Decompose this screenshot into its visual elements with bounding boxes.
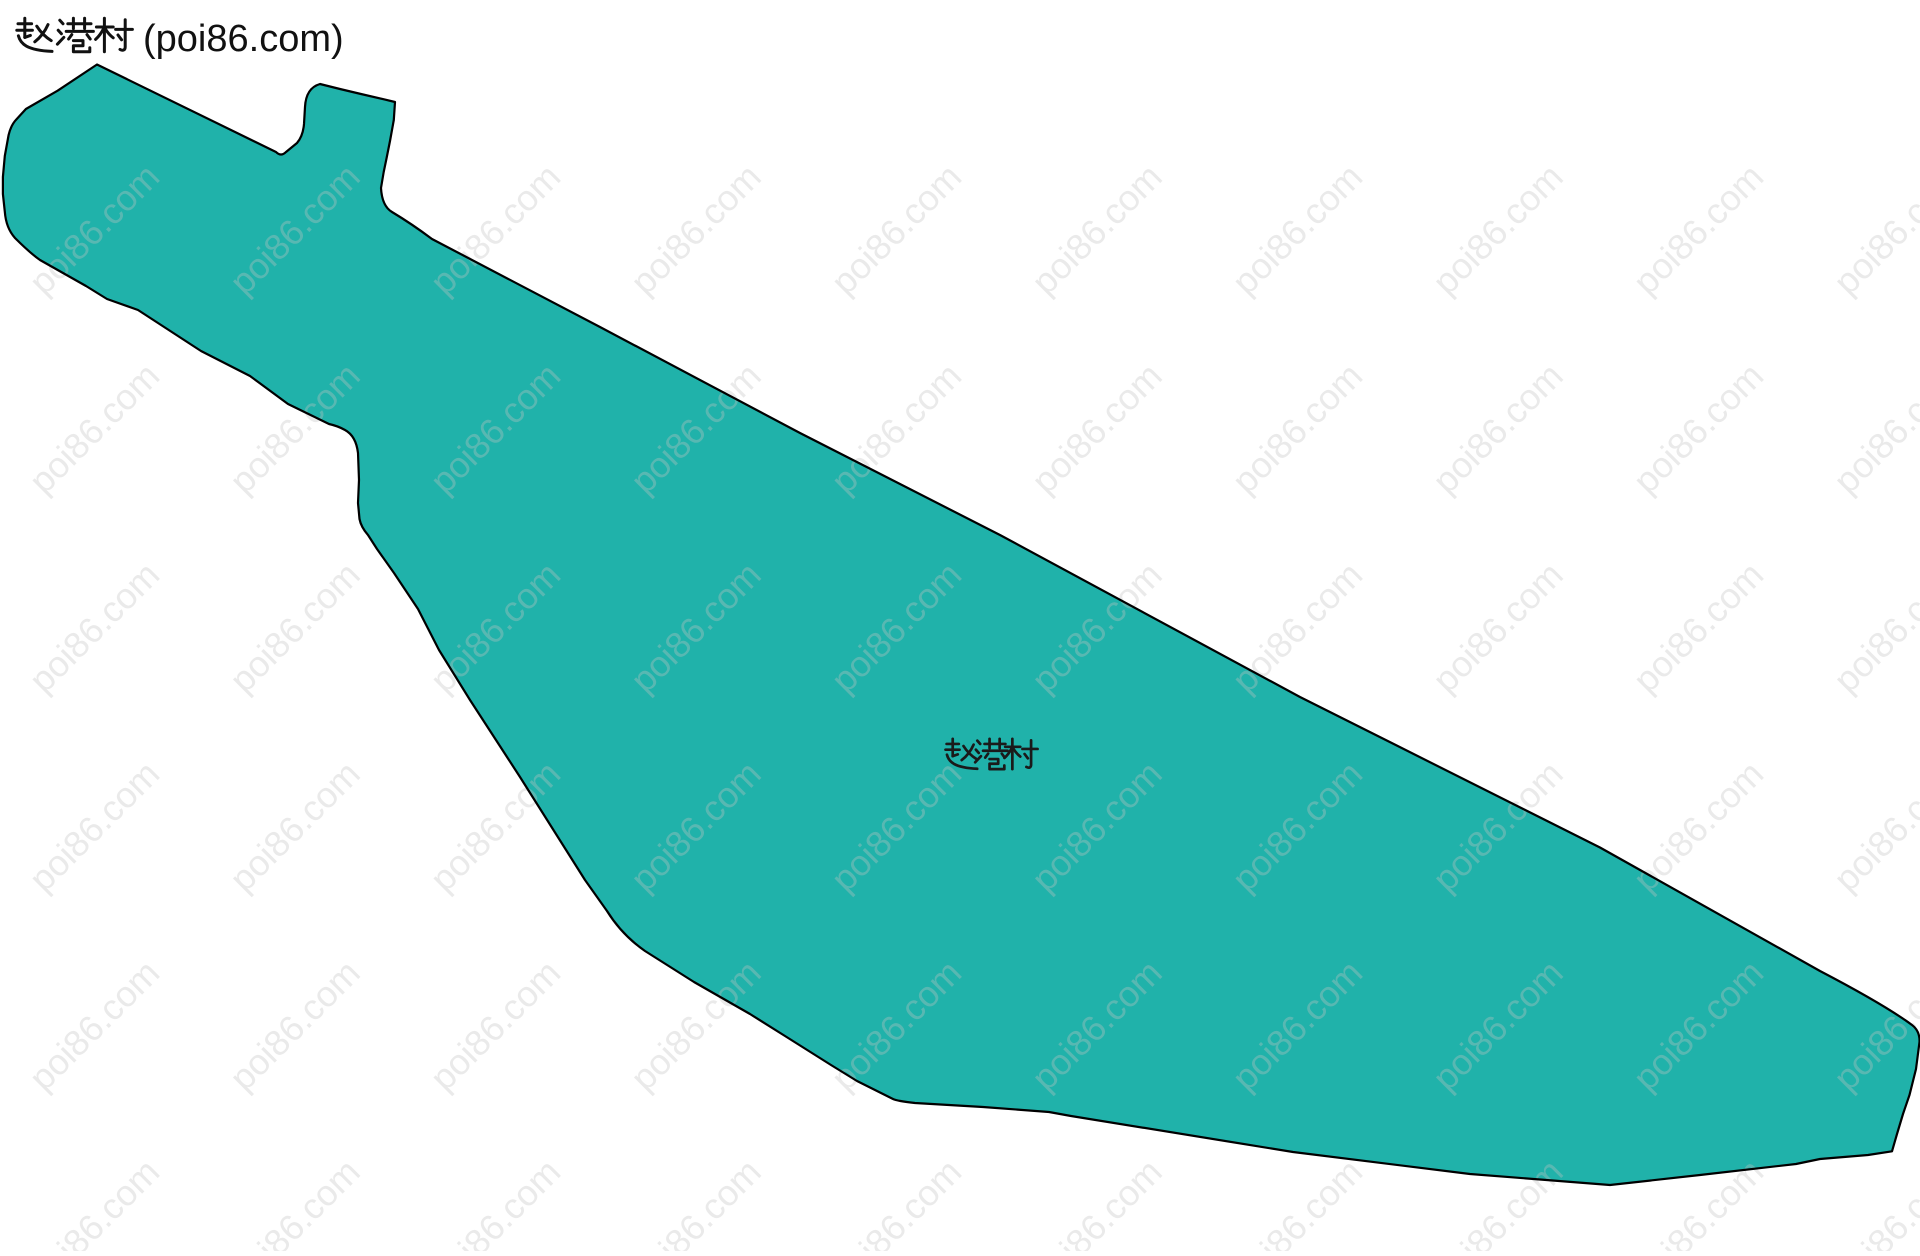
svg-text:poi86.com: poi86.com	[1023, 156, 1169, 302]
svg-text:poi86.com: poi86.com	[1825, 156, 1920, 302]
svg-text:poi86.com: poi86.com	[622, 156, 768, 302]
svg-text:poi86.com: poi86.com	[1224, 156, 1370, 302]
svg-text:(poi86.com): (poi86.com)	[143, 18, 344, 60]
svg-text:poi86.com: poi86.com	[1625, 156, 1771, 302]
svg-text:poi86.com: poi86.com	[1424, 156, 1570, 302]
svg-text:poi86.com: poi86.com	[823, 156, 969, 302]
